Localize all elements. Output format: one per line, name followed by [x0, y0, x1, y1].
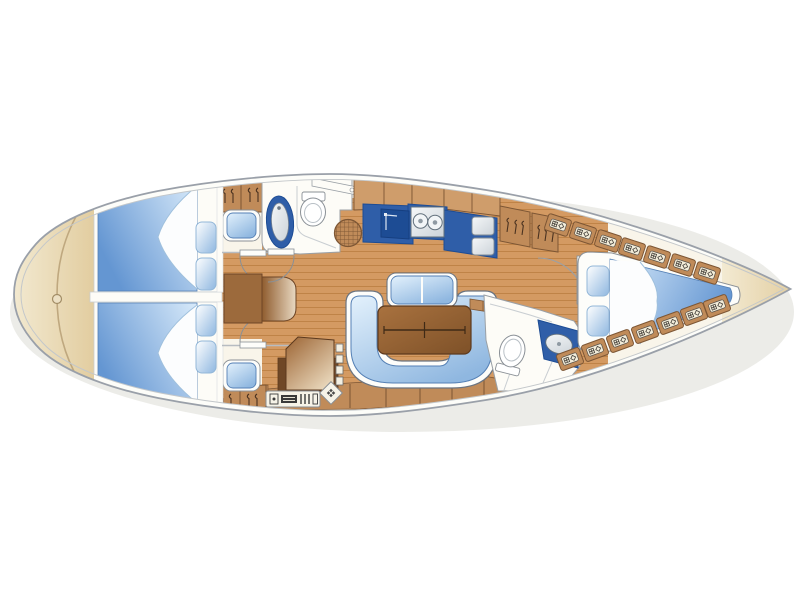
bench-seat [387, 273, 457, 307]
pillow [587, 266, 609, 296]
door-leaf [240, 250, 266, 256]
pillow [587, 306, 609, 336]
stern-deck [10, 168, 94, 430]
pillow [196, 258, 216, 290]
stove [381, 209, 409, 239]
pillow [196, 305, 216, 336]
cabin-wall [217, 181, 223, 292]
toilet [301, 192, 326, 226]
instrument-panel [266, 391, 320, 407]
door-leaf [240, 342, 266, 348]
wardrobe-fore-1 [500, 206, 530, 247]
seat-cushion [227, 213, 256, 238]
door-leaf [268, 249, 294, 255]
cabin-divider-wall [90, 292, 222, 302]
boat-floor-plan [0, 0, 800, 600]
double-sink [411, 207, 444, 237]
shower-grate [335, 220, 362, 247]
center-seat [224, 274, 296, 323]
chart-table [286, 337, 334, 390]
pillow [196, 222, 216, 253]
pillow [196, 341, 216, 373]
deck-fitting-icon [53, 295, 62, 304]
seat-cushion [227, 363, 256, 388]
folding-table [378, 306, 471, 354]
cabin-wall [217, 302, 223, 413]
